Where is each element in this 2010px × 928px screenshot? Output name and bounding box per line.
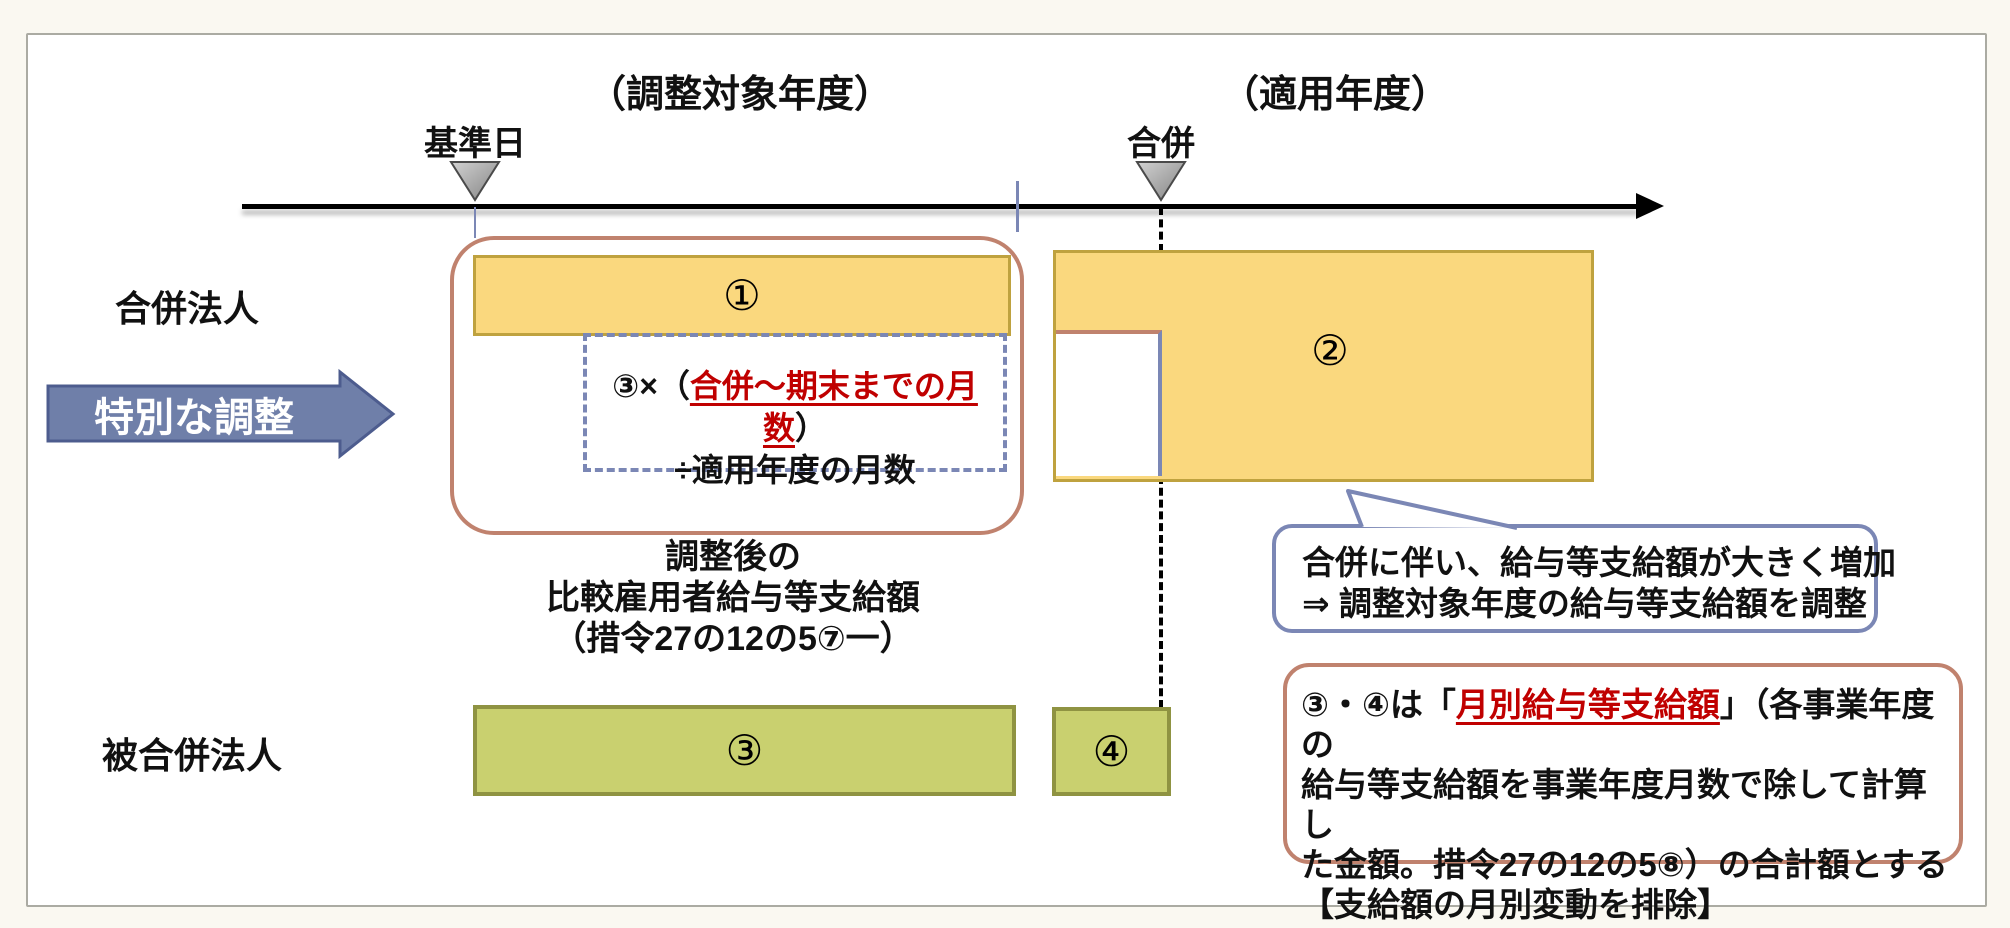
formula-box: ③×（合併～期末までの月数） ÷適用年度の月数 bbox=[583, 333, 1007, 472]
row-label-merging-corporation: 合併法人 bbox=[115, 280, 259, 332]
reference-date-connector-line bbox=[474, 207, 476, 238]
timeline-arrowhead-icon bbox=[1636, 193, 1664, 219]
note-line1-pre: ③・④は「 bbox=[1301, 686, 1456, 723]
row-label-merged-corporation: 被合併法人 bbox=[102, 727, 282, 779]
adjusted-amount-caption: 調整後の 比較雇用者給与等支給額 （措令27の12の5⑦一） bbox=[450, 537, 1016, 660]
diagram-canvas: （調整対象年度） （適用年度） 基準日 合併 ① ② ③×（合併～期末までの月数… bbox=[0, 0, 2010, 928]
note-line4: 【支給額の月別変動を排除】 bbox=[1301, 886, 1730, 923]
bar-3-number: ③ bbox=[726, 726, 764, 775]
formula-line2: ÷適用年度の月数 bbox=[674, 452, 916, 488]
merger-dashed-line-lower bbox=[1159, 476, 1163, 708]
reference-date-label: 基準日 bbox=[375, 116, 575, 165]
callout-line2: ⇒ 調整対象年度の給与等支給額を調整 bbox=[1302, 585, 1867, 622]
bar-4-number: ④ bbox=[1093, 727, 1131, 776]
note-line3: た金額。措令27の12の5⑧）の合計額とする bbox=[1301, 846, 1948, 883]
note-line1-highlight: 月別給与等支給額 bbox=[1456, 686, 1720, 723]
special-adjustment-arrow-label: 特別な調整 bbox=[48, 386, 340, 441]
salary-bar-1: ① bbox=[473, 255, 1011, 336]
bar-2-notch bbox=[1056, 330, 1162, 476]
merger-increase-callout: 合併に伴い、給与等支給額が大きく増加 ⇒ 調整対象年度の給与等支給額を調整 bbox=[1272, 524, 1878, 633]
timeline-axis bbox=[242, 204, 1638, 209]
callout-line1: 合併に伴い、給与等支給額が大きく増加 bbox=[1302, 544, 1896, 581]
note-line2: 給与等支給額を事業年度月数で除して計算し bbox=[1301, 766, 1927, 843]
formula-highlight: 合併～期末までの月数 bbox=[690, 368, 978, 446]
merger-label: 合併 bbox=[1061, 116, 1261, 165]
formula-prefix: ③×（ bbox=[612, 368, 690, 404]
merger-dashed-line-upper bbox=[1159, 207, 1163, 252]
caption-line1: 調整後の bbox=[665, 538, 801, 576]
salary-bar-4: ④ bbox=[1052, 707, 1171, 796]
bar-2-number: ② bbox=[1260, 326, 1400, 375]
caption-line3: （措令27の12の5⑦一） bbox=[552, 620, 913, 658]
salary-bar-3: ③ bbox=[473, 705, 1016, 796]
formula-suffix: ） bbox=[795, 410, 827, 446]
monthly-salary-note-box: ③・④は「月別給与等支給額」（各事業年度の 給与等支給額を事業年度月数で除して計… bbox=[1283, 663, 1963, 864]
period-label-adjustment-year: （調整対象年度） bbox=[540, 63, 940, 118]
period-label-application-year: （適用年度） bbox=[1135, 63, 1535, 118]
caption-line2: 比較雇用者給与等支給額 bbox=[546, 579, 920, 617]
period-divider-tick bbox=[1016, 181, 1019, 232]
bar-1-number: ① bbox=[723, 271, 761, 320]
